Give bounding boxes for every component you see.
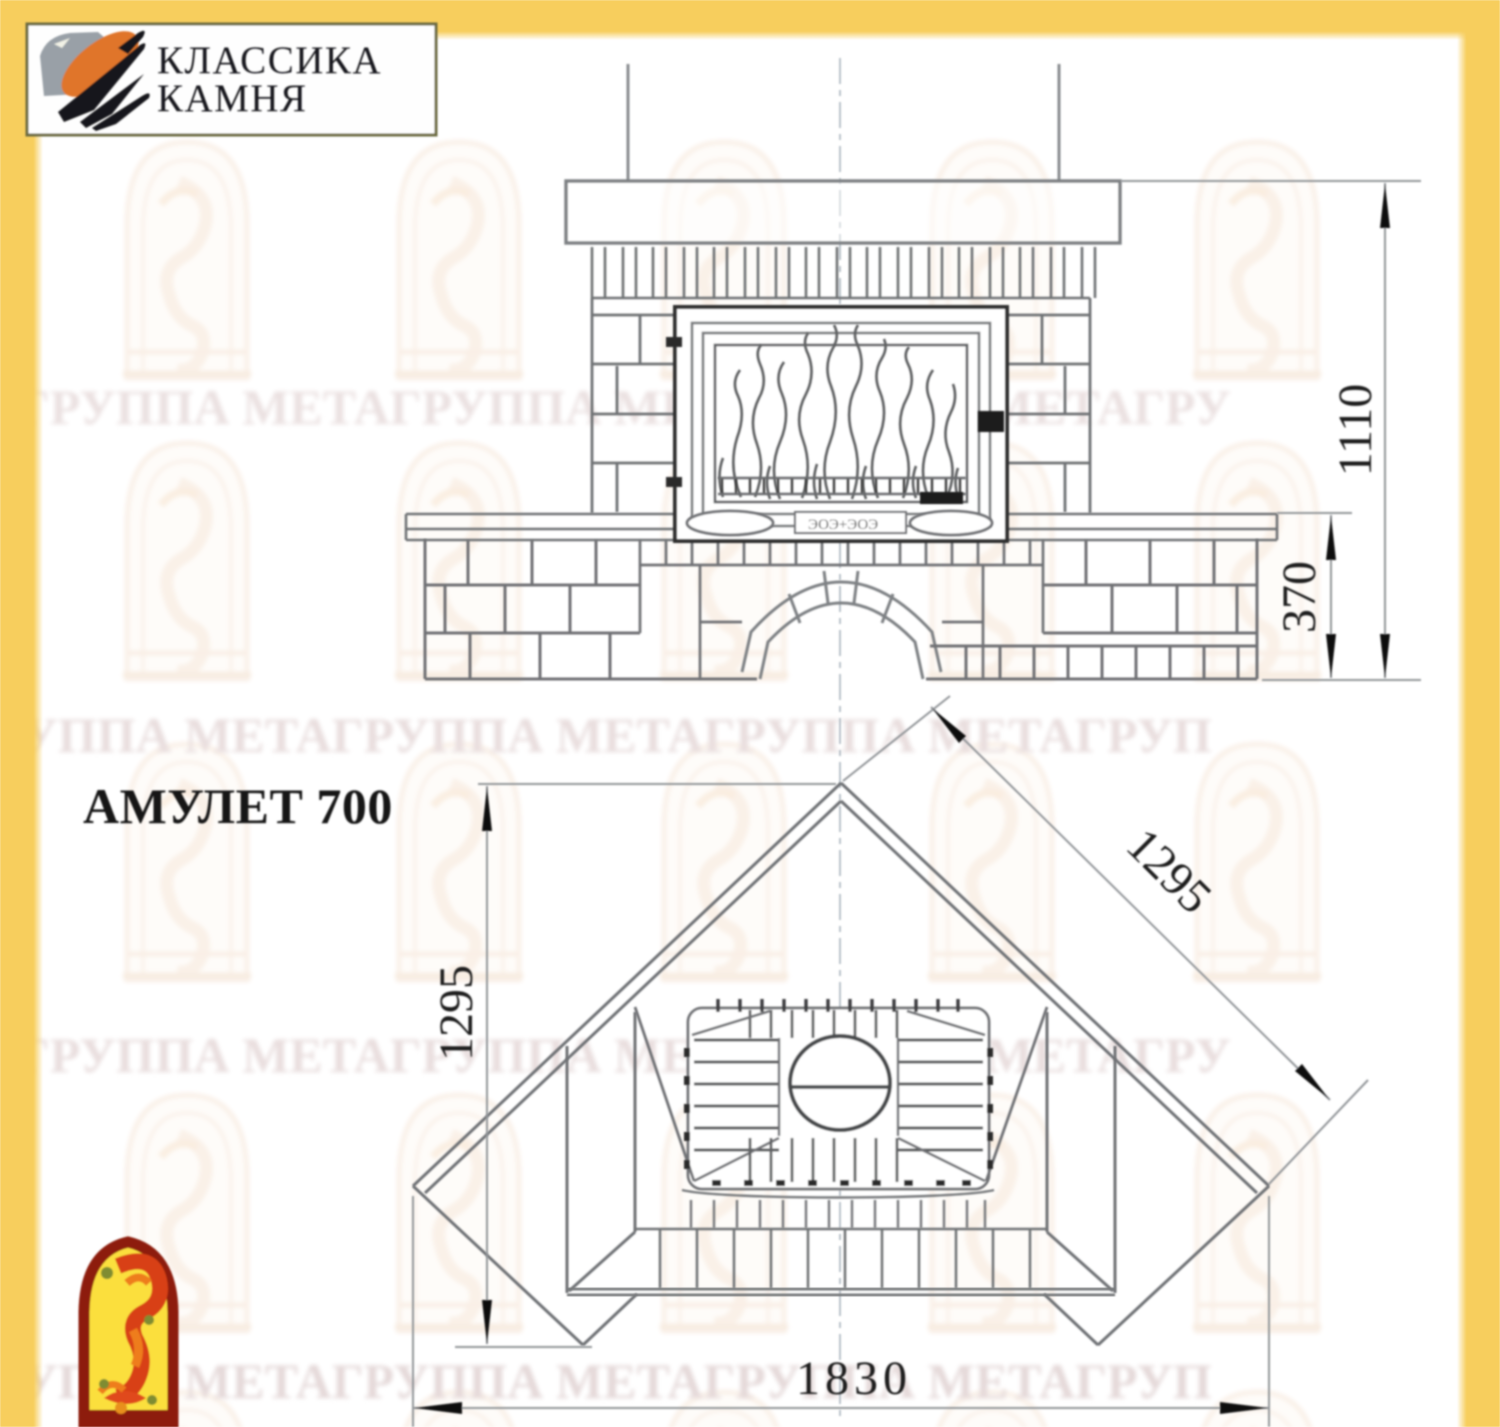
svg-text:КАМНЯ: КАМНЯ xyxy=(157,77,308,120)
svg-text:ЭОЭ+ЭОЭ: ЭОЭ+ЭОЭ xyxy=(808,517,878,533)
svg-text:1110: 1110 xyxy=(1329,384,1382,476)
svg-text:ГРУППА МЕТАГРУППА МЕТАГРУППА М: ГРУППА МЕТАГРУППА МЕТАГРУППА МЕТАГРУП xyxy=(0,1353,1212,1409)
svg-text:КЛАССИКА: КЛАССИКА xyxy=(157,39,382,82)
svg-text:ГРУППА МЕТАГРУППА МЕТАГРУППА М: ГРУППА МЕТАГРУППА МЕТАГРУППА МЕТАГРУ xyxy=(18,1027,1231,1083)
svg-text:ГРУППА МЕТАГРУППА МЕТАГРУППА М: ГРУППА МЕТАГРУППА МЕТАГРУППА МЕТАГРУ xyxy=(18,379,1231,435)
svg-text:1830: 1830 xyxy=(796,1352,912,1405)
svg-text:370: 370 xyxy=(1273,561,1326,633)
svg-text:ГРУППА МЕТАГРУППА МЕТАГРУППА М: ГРУППА МЕТАГРУППА МЕТАГРУППА МЕТАГРУП xyxy=(0,707,1212,763)
svg-text:АМУЛЕТ 700: АМУЛЕТ 700 xyxy=(83,778,393,834)
svg-text:1295: 1295 xyxy=(430,965,483,1061)
